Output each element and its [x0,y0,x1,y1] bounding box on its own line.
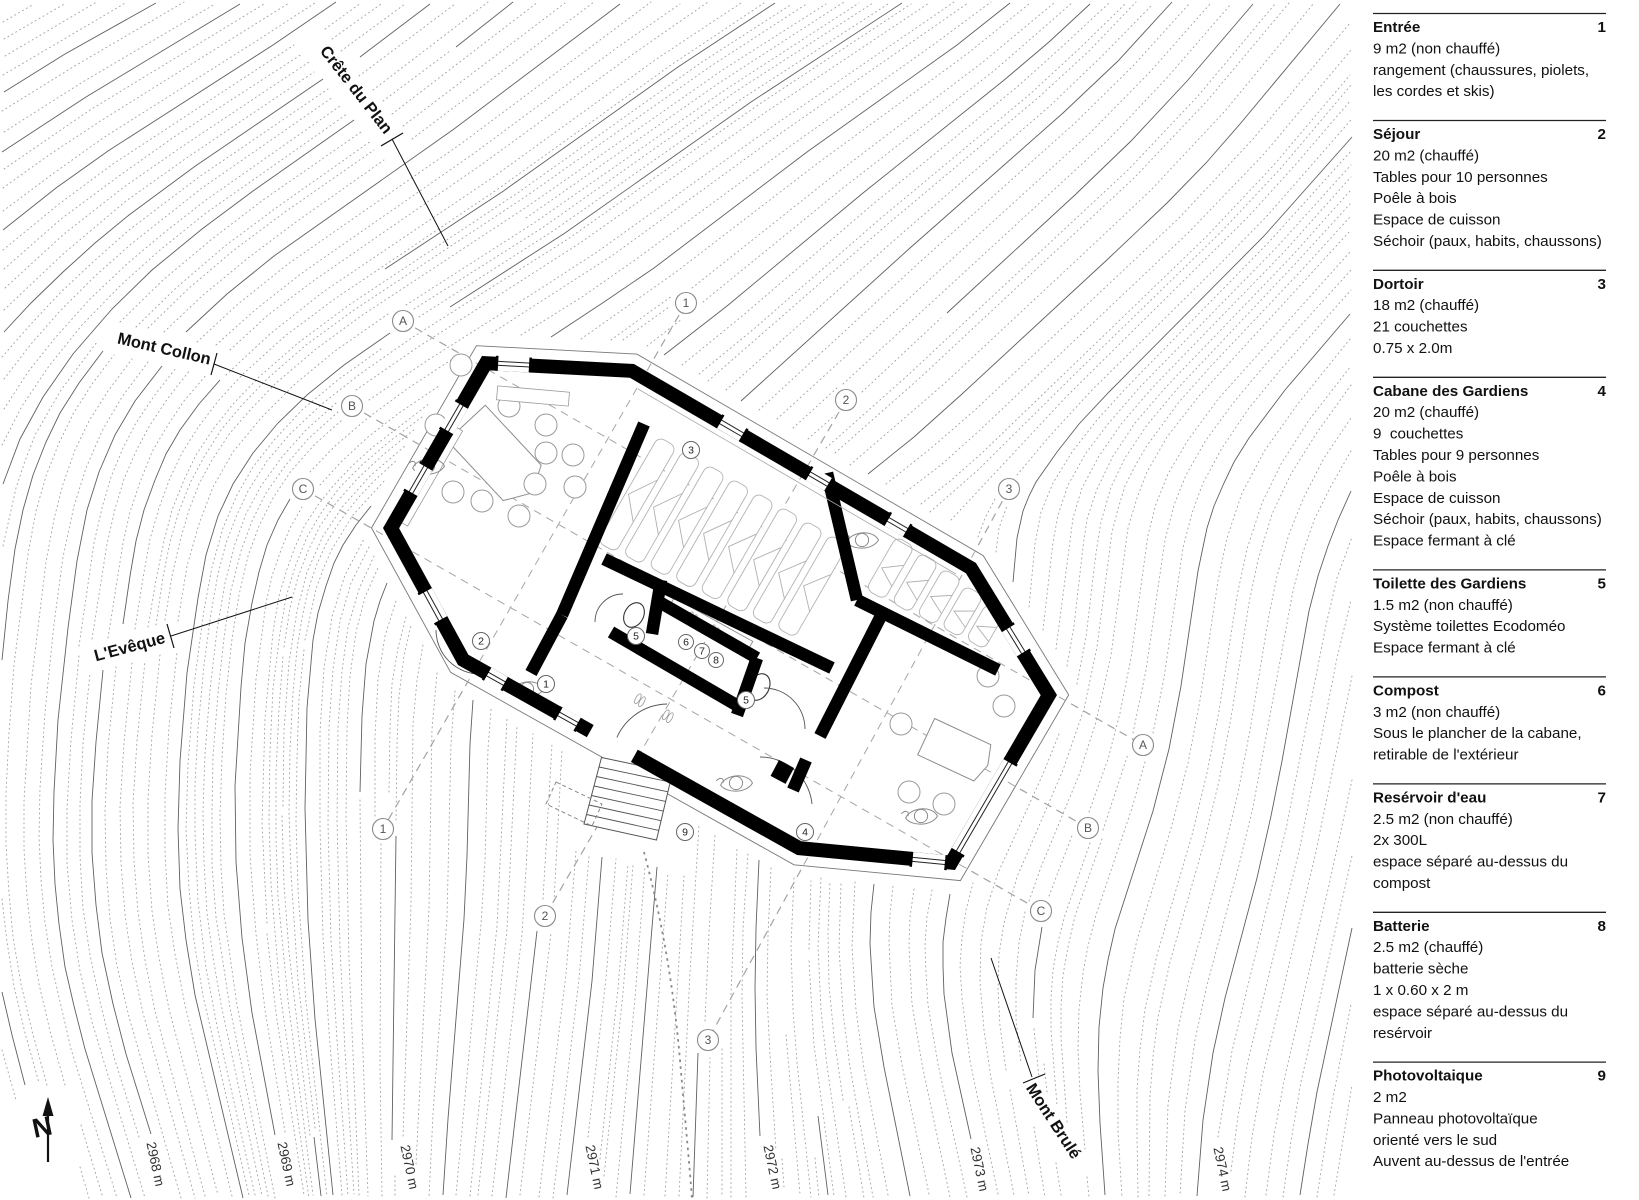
svg-text:Poêle à bois: Poêle à bois [1373,468,1457,485]
svg-text:Espace fermant à clé: Espace fermant à clé [1373,533,1516,550]
svg-text:3: 3 [688,445,694,457]
svg-text:7: 7 [699,646,705,658]
svg-text:Batterie: Batterie [1373,918,1430,935]
svg-text:9: 9 [1598,1068,1606,1085]
svg-text:2: 2 [542,909,549,923]
svg-text:rangement (chaussures, piolets: rangement (chaussures, piolets, [1373,62,1589,79]
svg-text:4: 4 [1598,383,1607,400]
svg-text:8: 8 [713,655,719,667]
svg-text:20 m2 (chauffé): 20 m2 (chauffé) [1373,404,1479,421]
svg-text:espace séparé au-dessus du: espace séparé au-dessus du [1373,854,1568,871]
svg-text:5: 5 [743,695,749,707]
svg-text:Poêle à bois: Poêle à bois [1373,190,1457,207]
svg-text:21 couchettes: 21 couchettes [1373,319,1468,336]
svg-text:7: 7 [1598,789,1606,806]
svg-text:9 m2 (non chauffé): 9 m2 (non chauffé) [1373,40,1500,57]
svg-text:2x 300L: 2x 300L [1373,832,1427,849]
svg-text:3: 3 [705,1033,712,1047]
svg-text:retirable de l'extérieur: retirable de l'extérieur [1373,747,1519,764]
svg-text:4: 4 [802,827,808,839]
svg-text:1: 1 [543,679,549,691]
svg-text:Entrée: Entrée [1373,19,1420,36]
svg-text:1: 1 [683,296,690,310]
svg-text:2.5 m2 (chauffé): 2.5 m2 (chauffé) [1373,939,1483,956]
svg-text:Compost: Compost [1373,682,1439,699]
svg-text:3: 3 [1598,276,1606,293]
svg-text:Resérvoir d'eau: Resérvoir d'eau [1373,789,1486,806]
svg-text:B: B [1084,821,1092,835]
svg-text:Séjour: Séjour [1373,126,1420,143]
svg-text:Espace de cuisson: Espace de cuisson [1373,212,1501,229]
svg-text:3 m2 (non chauffé): 3 m2 (non chauffé) [1373,704,1500,721]
svg-text:resérvoir: resérvoir [1373,1025,1432,1042]
svg-text:Panneau photovoltaïque: Panneau photovoltaïque [1373,1110,1538,1127]
svg-text:Espace fermant à clé: Espace fermant à clé [1373,640,1516,657]
svg-text:Toilette des Gardiens: Toilette des Gardiens [1373,575,1526,592]
svg-text:1.5 m2 (non chauffé): 1.5 m2 (non chauffé) [1373,597,1513,614]
svg-text:2: 2 [843,393,850,407]
svg-text:2: 2 [1598,126,1606,143]
svg-text:8: 8 [1598,918,1606,935]
svg-text:2: 2 [478,636,484,648]
svg-text:Séchoir (paux, habits, chausso: Séchoir (paux, habits, chaussons) [1373,233,1602,250]
svg-text:Sous le plancher de la cabane,: Sous le plancher de la cabane, [1373,725,1582,742]
svg-text:A: A [1139,738,1147,752]
svg-text:1: 1 [1598,19,1607,36]
svg-text:Système toilettes Ecodoméo: Système toilettes Ecodoméo [1373,618,1565,635]
svg-text:0.75 x 2.0m: 0.75 x 2.0m [1373,340,1452,357]
svg-text:Tables pour 10 personnes: Tables pour 10 personnes [1373,169,1548,186]
svg-text:1 x 0.60 x 2 m: 1 x 0.60 x 2 m [1373,982,1468,999]
svg-text:Séchoir (paux, habits, chausso: Séchoir (paux, habits, chaussons) [1373,511,1602,528]
svg-text:Tables pour 9 personnes: Tables pour 9 personnes [1373,447,1540,464]
svg-text:batterie sèche: batterie sèche [1373,961,1468,978]
svg-text:C: C [299,482,308,496]
svg-text:Auvent au-dessus de l'entrée: Auvent au-dessus de l'entrée [1373,1153,1569,1170]
svg-text:20 m2 (chauffé): 20 m2 (chauffé) [1373,147,1479,164]
svg-text:orienté vers le sud: orienté vers le sud [1373,1132,1497,1149]
svg-text:B: B [348,399,356,413]
svg-text:A: A [399,314,407,328]
svg-text:compost: compost [1373,875,1431,892]
svg-text:C: C [1037,904,1046,918]
svg-text:Dortoir: Dortoir [1373,276,1424,293]
svg-text:1: 1 [380,822,387,836]
svg-text:les cordes et skis): les cordes et skis) [1373,83,1495,100]
svg-text:2 m2: 2 m2 [1373,1089,1407,1106]
svg-text:3: 3 [1006,482,1013,496]
svg-text:Photovoltaique: Photovoltaique [1373,1068,1483,1085]
svg-text:2.5 m2 (non chauffé): 2.5 m2 (non chauffé) [1373,811,1513,828]
svg-text:9 couchettes: 9 couchettes [1373,426,1464,443]
svg-text:Espace de cuisson: Espace de cuisson [1373,490,1501,507]
svg-text:5: 5 [633,631,639,643]
svg-text:6: 6 [1598,682,1606,699]
svg-text:espace séparé au-dessus du: espace séparé au-dessus du [1373,1003,1568,1020]
svg-text:5: 5 [1598,575,1607,592]
svg-text:6: 6 [683,637,689,649]
svg-text:18 m2 (chauffé): 18 m2 (chauffé) [1373,297,1479,314]
svg-text:Cabane des Gardiens: Cabane des Gardiens [1373,383,1528,400]
svg-text:9: 9 [682,827,688,839]
